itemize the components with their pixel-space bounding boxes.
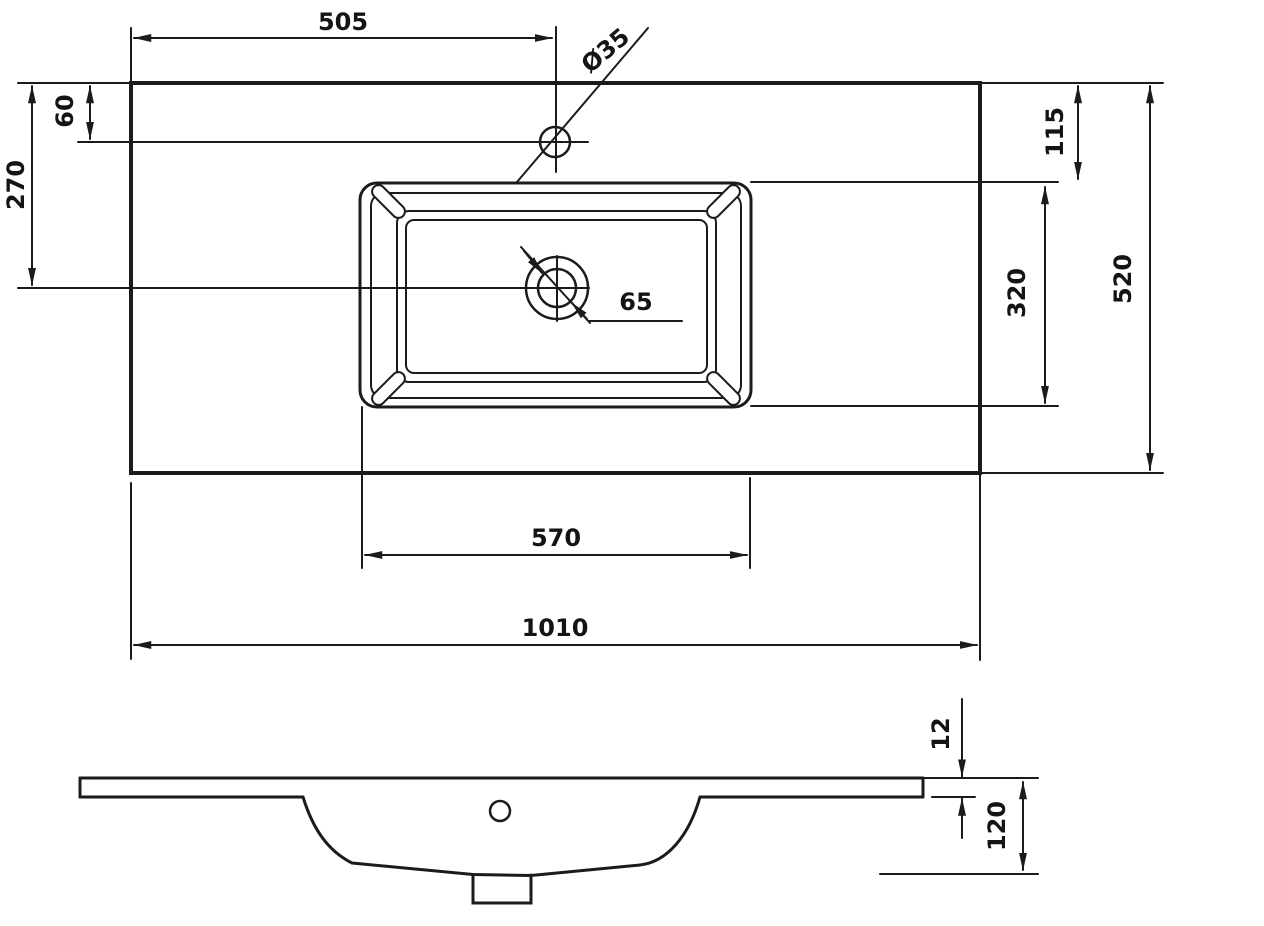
dimension-lines-top-view [32,38,1150,645]
bowl-profile [303,797,700,876]
dim-label-570: 570 [531,524,581,552]
dim-label-270: 270 [2,160,30,210]
drain-stub [473,875,531,903]
dim-label-505: 505 [318,8,368,36]
dim-label-65: 65 [619,288,652,316]
washbasin-technical-drawing: 505 Ø35 60 270 115 320 520 65 570 1010 1… [0,0,1264,926]
extension-lines-top-view [18,27,1163,660]
side-view [80,699,1038,903]
dim-label-1010: 1010 [522,614,589,642]
extension-lines-side-view [880,778,1038,874]
technical-drawing-page: 505 Ø35 60 270 115 320 520 65 570 1010 1… [0,0,1264,926]
dim-label-120: 120 [983,801,1011,851]
dimension-labels: 505 Ø35 60 270 115 320 520 65 570 1010 1… [2,8,1137,851]
basin-rim [360,182,751,407]
dim-label-60: 60 [51,94,79,127]
dim-label-115: 115 [1041,107,1069,157]
overflow-hole [490,801,510,821]
dim-label-12: 12 [927,717,955,750]
slab-profile [80,778,923,797]
top-view [18,27,1163,660]
dim-label-520: 520 [1109,254,1137,304]
dim-label-320: 320 [1003,268,1031,318]
dia-label-35: Ø35 [576,23,635,79]
